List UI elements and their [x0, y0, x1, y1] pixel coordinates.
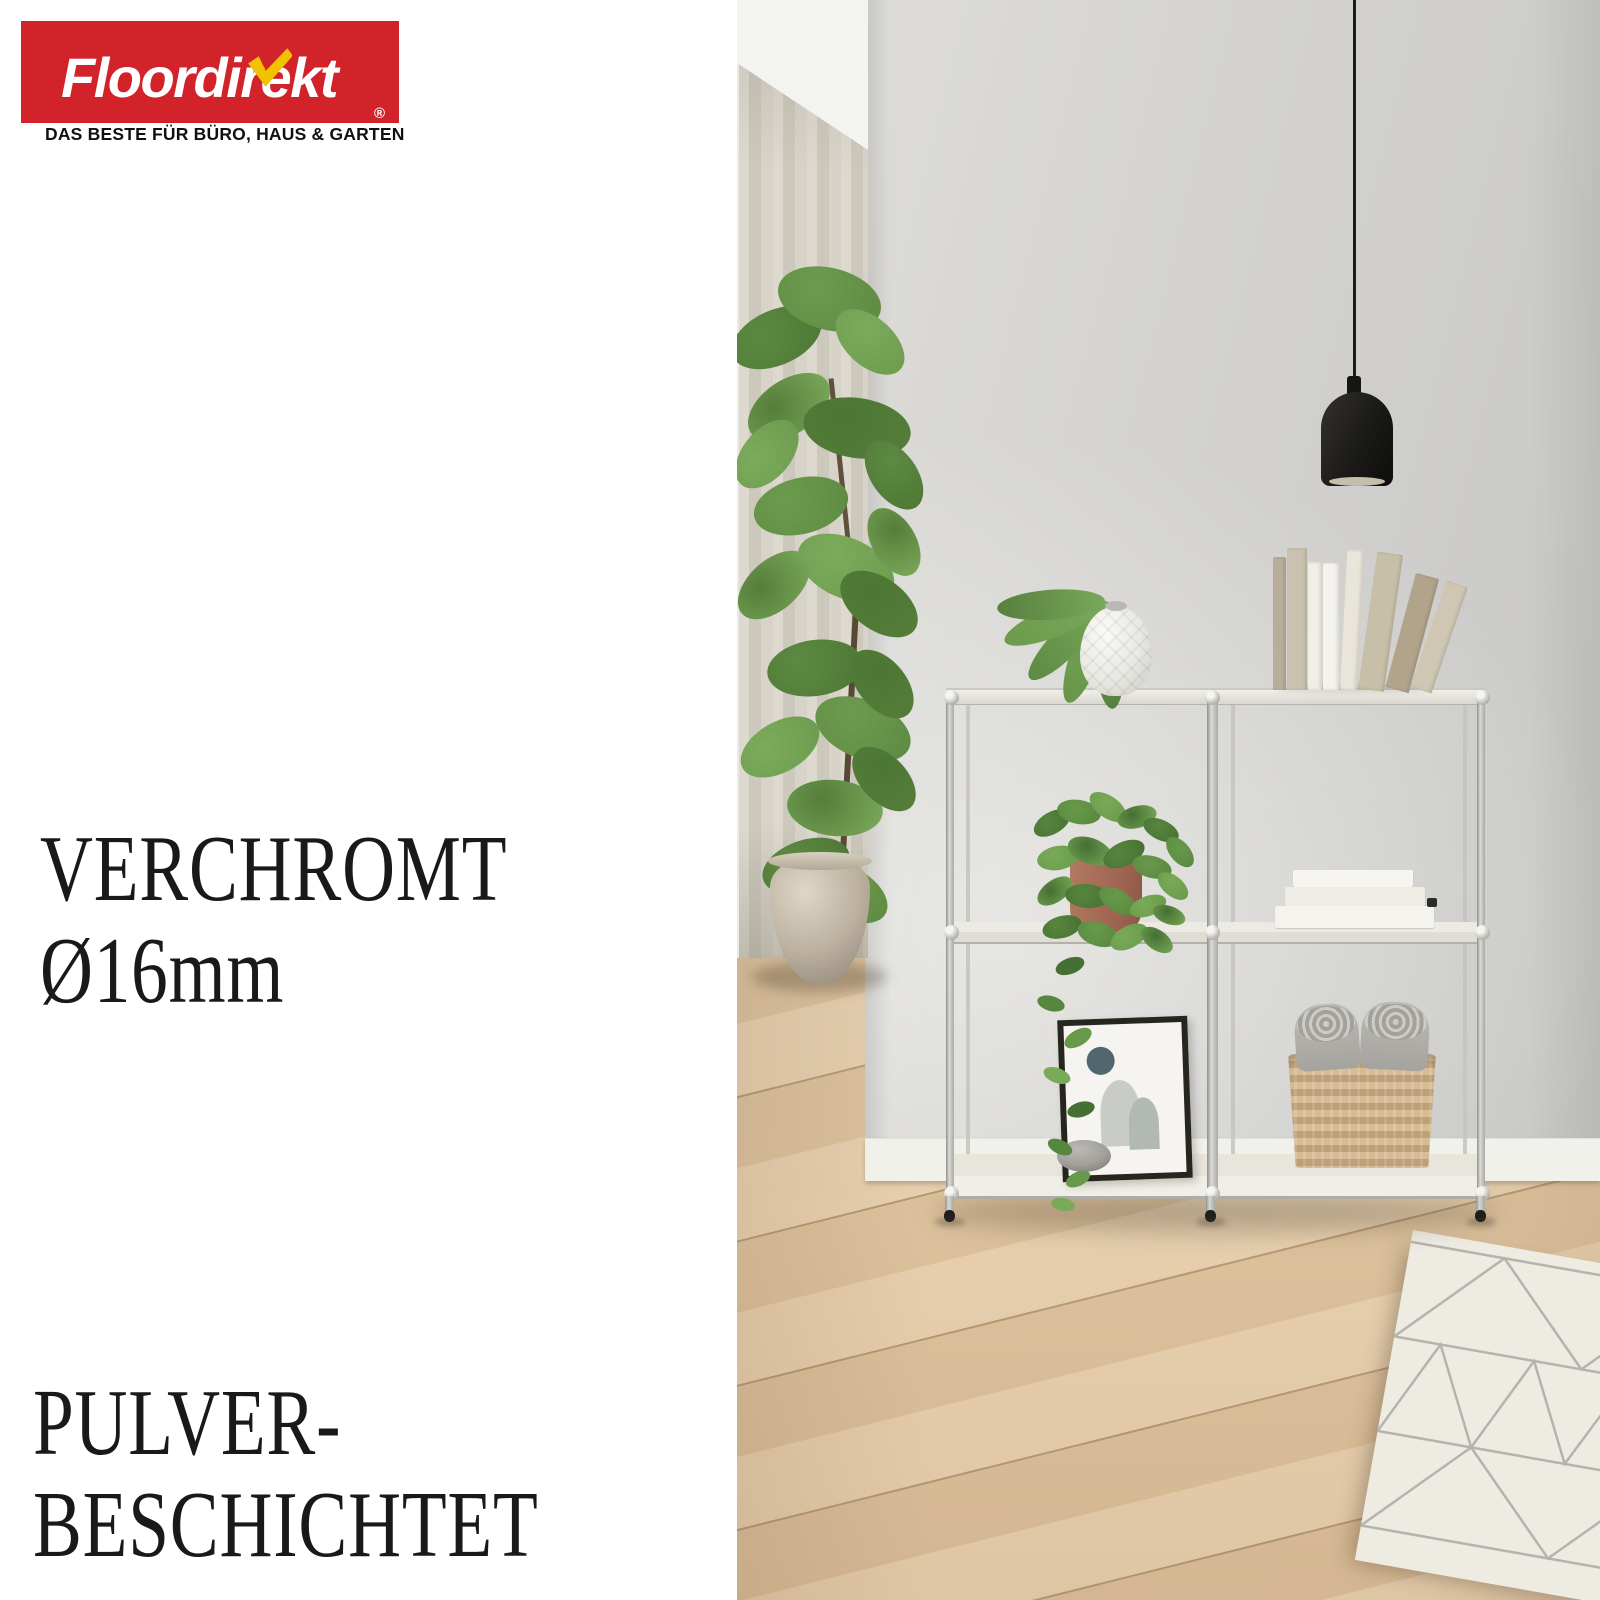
claim-verchromt-diameter: Ø16mm: [40, 920, 507, 1022]
claim-verchromt-title: VERCHROMT: [40, 818, 507, 920]
claim-powder-line1: PULVER-: [33, 1372, 539, 1474]
towel-spiral-end: [1364, 1002, 1428, 1041]
shelf-post-right: [1477, 694, 1485, 1200]
shelf-post-center: [1207, 694, 1218, 1200]
logo-wordmark: Floordirekt: [61, 45, 337, 110]
ball-joint: [1205, 925, 1220, 940]
product-banner: Floordirekt ® DAS BESTE FÜR BÜRO, HAUS &…: [0, 0, 1600, 1600]
top-books: [1273, 546, 1439, 690]
ball-joint: [944, 690, 959, 705]
book-spine: [1308, 562, 1322, 690]
lamp-cord: [1353, 0, 1356, 394]
floordirekt-logo: Floordirekt ®: [21, 21, 399, 123]
stacked-book: [1285, 887, 1425, 906]
brand-tagline: DAS BESTE FÜR BÜRO, HAUS & GARTEN: [45, 124, 405, 145]
faceted-white-vase: [1080, 606, 1152, 696]
towel-spiral-end: [1296, 1004, 1356, 1044]
print-circle-shape: [1086, 1046, 1115, 1075]
claim-pulverbeschichtet: PULVER- BESCHICHTET: [33, 1372, 539, 1576]
book-spine: [1273, 557, 1286, 690]
foot-shadow: [1466, 1218, 1496, 1226]
claim-powder-line2: BESCHICHTET: [33, 1474, 539, 1576]
check-icon: [246, 47, 292, 87]
book-spine: [1323, 563, 1339, 690]
ball-joint: [1205, 690, 1220, 705]
lamp-light-rim: [1329, 477, 1385, 486]
wall-right-shading: [1527, 0, 1600, 1180]
ball-joint: [1475, 690, 1490, 705]
stacked-book: [1293, 870, 1413, 887]
rolled-towel: [1359, 1000, 1430, 1071]
registered-trademark-icon: ®: [374, 105, 385, 122]
book-spine: [1287, 548, 1307, 690]
book-clip: [1427, 898, 1437, 907]
interior-scene-photo: [737, 0, 1600, 1600]
pendant-lamp: [1321, 392, 1393, 486]
ball-joint: [1475, 925, 1490, 940]
shelf-post-left: [946, 694, 954, 1200]
rolled-towel: [1293, 1002, 1361, 1072]
vase-opening: [1105, 601, 1127, 611]
foot-shadow: [1196, 1218, 1226, 1226]
text-panel: Floordirekt ® DAS BESTE FÜR BÜRO, HAUS &…: [0, 0, 737, 1600]
ceramic-pot-rim: [768, 852, 872, 870]
print-arch-shape-2: [1128, 1097, 1160, 1150]
foot-shadow: [935, 1218, 965, 1226]
claim-verchromt: VERCHROMT Ø16mm: [40, 818, 507, 1022]
stacked-book: [1275, 906, 1434, 928]
ball-joint: [944, 925, 959, 940]
